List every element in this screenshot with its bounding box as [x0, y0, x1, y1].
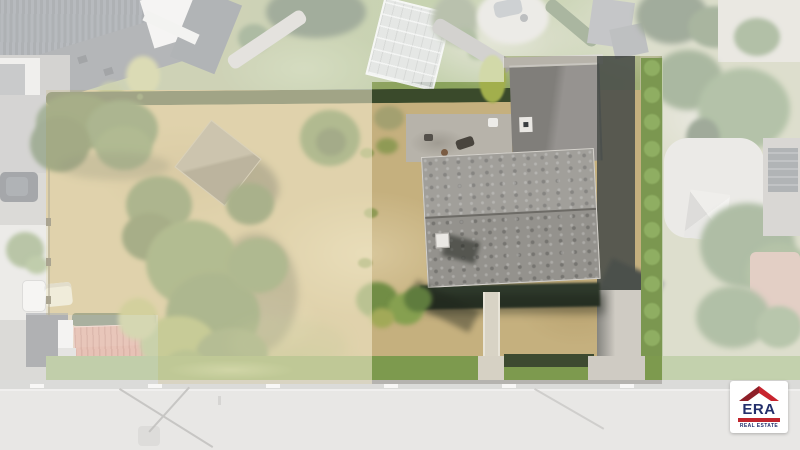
- road-stain: [138, 426, 160, 446]
- front-bush-yellow: [370, 308, 394, 328]
- road-marking: [148, 384, 162, 388]
- overhead-cable: [534, 388, 604, 429]
- front-bush: [404, 286, 432, 312]
- weed-patch: [376, 138, 398, 154]
- bush-yellow: [118, 298, 158, 340]
- era-logo-badge: ERA REAL ESTATE: [730, 381, 788, 433]
- road-marking: [620, 384, 634, 388]
- road-marking: [30, 384, 44, 388]
- tree-canopy: [756, 306, 800, 348]
- house-roof: [421, 148, 601, 288]
- bush: [26, 256, 48, 274]
- roof-vent-cap: [523, 122, 528, 127]
- tree-canopy: [228, 238, 288, 293]
- overhead-cable: [119, 388, 213, 448]
- weed-patch: [360, 148, 374, 158]
- bush: [126, 56, 160, 96]
- front-walkway: [483, 292, 500, 364]
- tree-canopy: [734, 18, 780, 56]
- tree-canopy: [226, 183, 274, 225]
- aerial-photo-stage: ERA REAL ESTATE: [0, 0, 800, 450]
- era-red-bar: [738, 418, 780, 422]
- fence-post: [46, 296, 51, 304]
- road-marking: [502, 384, 516, 388]
- curb-tick: [218, 396, 221, 405]
- weed-patch: [364, 208, 378, 218]
- boundary-hedge-east: [641, 58, 663, 380]
- patio-object-white: [488, 118, 498, 127]
- patio-object: [520, 14, 528, 22]
- bush-bright: [479, 55, 506, 103]
- fence-post: [46, 258, 51, 266]
- weed-patch: [374, 106, 404, 130]
- front-hedge-wall: [504, 354, 594, 367]
- patio-object: [424, 134, 433, 141]
- caravan: [22, 280, 46, 312]
- road-marking: [384, 384, 398, 388]
- car-roof-highlight: [6, 177, 28, 196]
- era-tagline-text: REAL ESTATE: [740, 423, 778, 429]
- chimney: [435, 233, 450, 249]
- solar-panels: [768, 148, 798, 192]
- neighbor-building-gray: [0, 64, 25, 98]
- building-white-sliver: [58, 320, 73, 348]
- weed-patch: [358, 258, 372, 268]
- tree-canopy-dark: [316, 128, 346, 156]
- road-marking: [266, 384, 280, 388]
- era-roof-icon: [738, 385, 780, 402]
- street: [0, 380, 800, 450]
- era-brand-text: ERA: [742, 403, 775, 417]
- roof-upper-slope-highlight: [422, 149, 596, 217]
- boundary-fence: [48, 165, 50, 317]
- fence-post: [46, 218, 51, 226]
